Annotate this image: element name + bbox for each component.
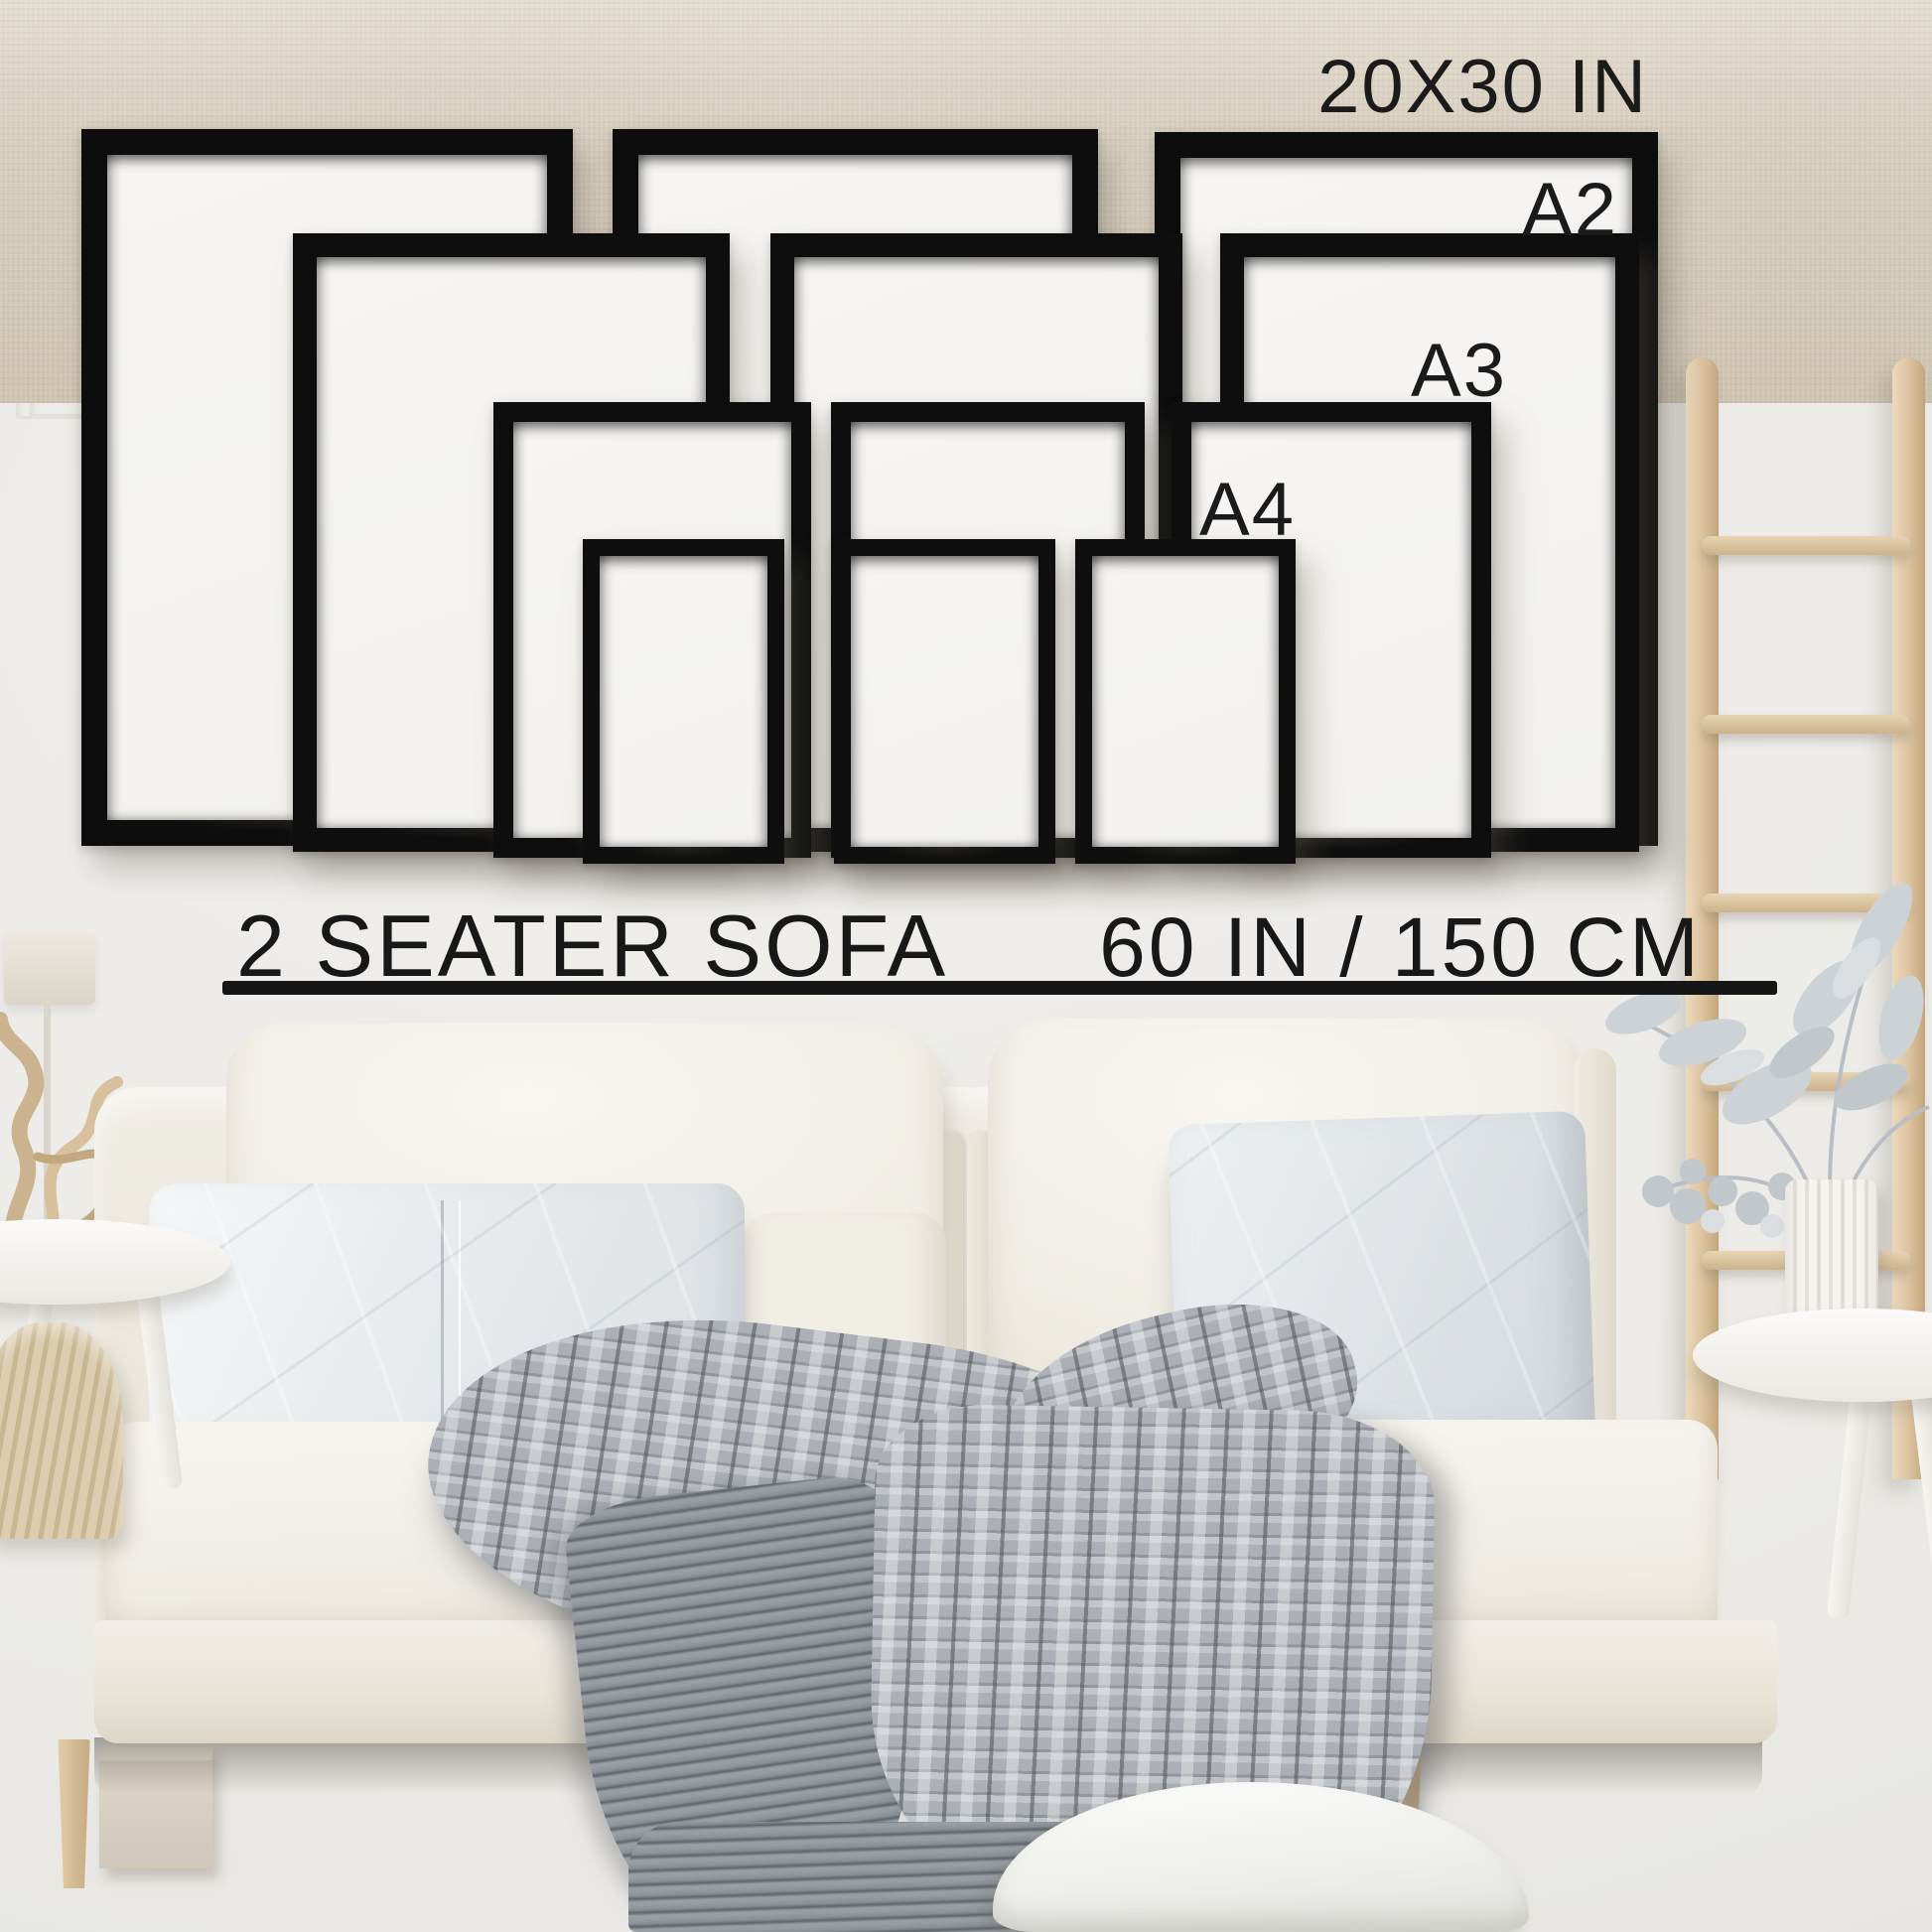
woven-basket [0,1322,123,1539]
frame-a4-1 [583,539,784,864]
frame-a4-2 [834,539,1055,864]
size-label-a3: A3 [1411,328,1507,414]
size-label-a2: A2 [1522,167,1618,253]
size-label-20x30: 20X30 IN [1317,44,1648,130]
measure-line [222,981,1777,995]
lamp-shade [4,931,95,1005]
room-scene: 20X30 IN A2 A3 A4 2 SEATER SOFA 60 IN / … [0,0,1932,1932]
size-label-a4: A4 [1199,467,1296,553]
frame-a4-3 [1075,539,1296,864]
